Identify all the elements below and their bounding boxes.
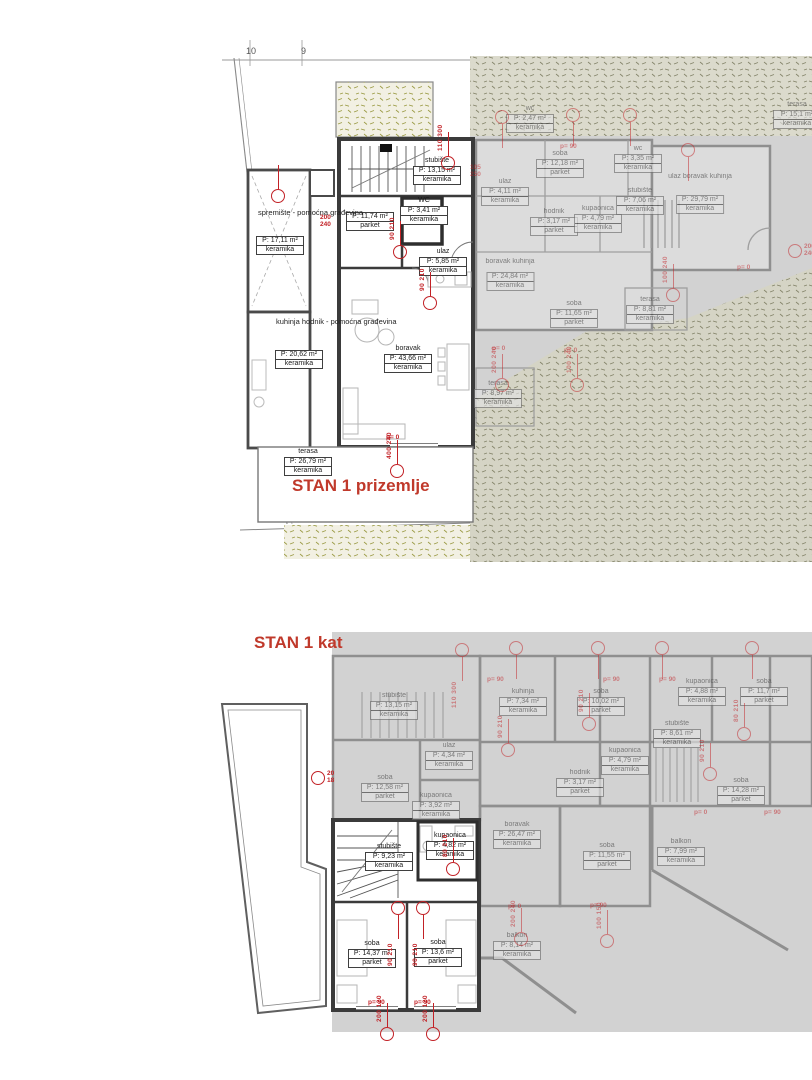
opening-marker-value: 20 18 (327, 770, 334, 785)
opening-marker-line (607, 910, 608, 934)
room-label: kupaonicaP: 3,92 m²keramika (412, 792, 460, 820)
opening-marker-circle (514, 932, 528, 946)
opening-marker-line (430, 272, 431, 296)
ground-floor-title: STAN 1 prizemlje (292, 476, 430, 496)
opening-marker-line (448, 132, 449, 156)
room-label: wcP: 2,47 m²keramika (506, 105, 554, 133)
room-label: kupaonicaP: 4,82 m²keramika (426, 832, 474, 860)
room-label: sobaP: 12,18 m²parket (536, 150, 584, 178)
opening-marker-line (398, 915, 399, 939)
room-label: wcP: 3,35 m²keramika (614, 145, 662, 173)
room-label: WCP: 3,41 m²keramika (400, 197, 448, 225)
opening-marker-circle (566, 108, 580, 122)
opening-marker-value: 90 210 (700, 716, 707, 762)
opening-marker-line (397, 440, 398, 464)
opening-marker-circle (623, 108, 637, 122)
opening-marker-circle (441, 156, 455, 170)
parapet-label: p= 0 (386, 434, 399, 441)
parapet-label: p= 90 (659, 676, 676, 683)
parapet-label: p= 90 (764, 809, 781, 816)
opening-marker-value: 110 300 (452, 662, 459, 708)
opening-marker-circle (745, 641, 759, 655)
room-label: hodnikP: 3,17 m²parket (530, 208, 578, 236)
parapet-label: p= 90 (487, 676, 504, 683)
opening-marker-line (423, 915, 424, 939)
opening-marker-line (744, 703, 745, 727)
opening-marker-line (589, 693, 590, 717)
parapet-label: p= 90 (603, 676, 620, 683)
opening-marker-circle (666, 288, 680, 302)
room-label: sobaP: 11,55 m²parket (583, 842, 631, 870)
opening-marker-line (453, 838, 454, 862)
opening-marker-value: 100 240 (663, 237, 670, 283)
room-label: kuhinjaP: 7,34 m²keramika (499, 688, 547, 716)
opening-marker-line (688, 157, 689, 181)
room-label: P: 20,62 m²keramika (275, 350, 323, 369)
room-label: kupaonicaP: 4,79 m²keramika (574, 205, 622, 233)
parapet-label: p= 0 (492, 345, 505, 352)
opening-marker-value: 90 210 (420, 245, 427, 291)
opening-marker-line (278, 165, 279, 189)
room-label: kupaonicaP: 4,88 m²keramika (678, 678, 726, 706)
opening-marker-circle (271, 189, 285, 203)
room-label: terasaP: 26,79 m²keramika (284, 448, 332, 476)
opening-marker-value: 90 210 (388, 920, 395, 966)
opening-marker-line (400, 221, 401, 245)
room-label: sobaP: 12,58 m²parket (361, 774, 409, 802)
room-label: balkonP: 7,99 m²keramika (657, 838, 705, 866)
opening-marker-circle (311, 771, 325, 785)
room-label: ulazP: 4,11 m²keramika (481, 178, 529, 206)
opening-marker-circle (501, 743, 515, 757)
opening-marker-value: 80 210 (443, 811, 450, 857)
grid-label-10: 10 (246, 46, 256, 56)
opening-marker-line (387, 1003, 388, 1027)
room-label: stubišteP: 8,61 m²keramika (653, 720, 701, 748)
parapet-label: p= 90 (560, 143, 577, 150)
parapet-label: p= 0 (564, 347, 577, 354)
grid-label-9: 9 (301, 46, 306, 56)
opening-marker-line (598, 655, 599, 679)
parapet-label: p= 0 (737, 264, 750, 271)
opening-marker-circle (591, 641, 605, 655)
opening-marker-circle (446, 862, 460, 876)
room-label: boravakP: 26,47 m²keramika (493, 821, 541, 849)
room-label: sobaP: 13,6 m²parket (414, 939, 462, 967)
opening-marker-line (673, 264, 674, 288)
opening-marker-line (433, 1003, 434, 1027)
opening-marker-value: 90 210 (390, 194, 397, 240)
opening-marker-circle (416, 901, 430, 915)
room-label: stubišteP: 13,15 m²keramika (370, 692, 418, 720)
opening-marker-circle (737, 727, 751, 741)
opening-marker-line (508, 719, 509, 743)
opening-marker-value: 110 300 (438, 105, 445, 151)
opening-marker-line (462, 657, 463, 681)
annotation-kuhinja-hodnik: kuhinja hodnik - pomoćna građevina (276, 317, 397, 326)
floorplan-canvas: P: 17,11 m²keramikaP: 20,62 m²keramikast… (0, 0, 812, 1080)
opening-marker-line (577, 354, 578, 378)
room-label: stubišteP: 9,23 m²keramika (365, 843, 413, 871)
opening-marker-line (710, 743, 711, 767)
opening-marker-circle (582, 717, 596, 731)
opening-marker-line (630, 122, 631, 146)
opening-marker-circle (681, 143, 695, 157)
room-label: terasaP: 15,1 m²keramika (773, 101, 812, 129)
opening-marker-line (502, 124, 503, 148)
parapet-label: p= 90 (590, 902, 607, 909)
opening-marker-value: 90 210 (413, 920, 420, 966)
room-label: sobaP: 11,7 m²parket (740, 678, 788, 706)
opening-marker-circle (495, 110, 509, 124)
opening-marker-circle (655, 641, 669, 655)
opening-marker-value: 105 250 (470, 164, 481, 179)
room-label: sobaP: 14,28 m²parket (717, 777, 765, 805)
opening-marker-circle (426, 1027, 440, 1041)
opening-marker-circle (509, 641, 523, 655)
opening-marker-value: 80 210 (734, 676, 741, 722)
room-label: stubišteP: 7,06 m²keramika (616, 187, 664, 215)
opening-marker-circle (788, 244, 802, 258)
opening-marker-line (516, 655, 517, 679)
opening-marker-line (502, 354, 503, 378)
opening-marker-circle (570, 378, 584, 392)
room-label: hodnikP: 3,17 m²parket (556, 769, 604, 797)
room-label: kupaonicaP: 4,79 m²keramika (601, 747, 649, 775)
opening-marker-line (752, 655, 753, 679)
opening-marker-line (521, 908, 522, 932)
opening-marker-value: 90 210 (498, 692, 505, 738)
room-label: P: 17,11 m²keramika (256, 236, 304, 255)
opening-marker-circle (495, 378, 509, 392)
opening-marker-circle (600, 934, 614, 948)
opening-marker-circle (380, 1027, 394, 1041)
room-label: ulaz boravak kuhinjaP: 29,79 m²keramika (668, 173, 732, 214)
room-label: ulazP: 4,34 m²keramika (425, 742, 473, 770)
parapet-label: p= 0 (508, 903, 521, 910)
parapet-label: p= 0 (694, 809, 707, 816)
opening-marker-value: 90 210 (579, 666, 586, 712)
annotation-spremiste: spremište - pomoćna građevina (258, 208, 363, 217)
label-layer: P: 17,11 m²keramikaP: 20,62 m²keramikast… (0, 0, 812, 1080)
parapet-label: p= 90 (368, 999, 385, 1006)
opening-marker-circle (423, 296, 437, 310)
opening-marker-circle (393, 245, 407, 259)
parapet-label: p= 90 (414, 999, 431, 1006)
room-label: boravak kuhinjaP: 24,84 m²keramika (485, 258, 534, 291)
opening-marker-circle (703, 767, 717, 781)
room-label: sobaP: 11,65 m²parket (550, 300, 598, 328)
opening-marker-circle (455, 643, 469, 657)
opening-marker-value: 200 240 (804, 243, 812, 258)
opening-marker-circle (391, 901, 405, 915)
first-floor-title: STAN 1 kat (254, 633, 343, 653)
room-label: boravakP: 43,66 m²keramika (384, 345, 432, 373)
room-label: terasaP: 8,81 m²keramika (626, 296, 674, 324)
